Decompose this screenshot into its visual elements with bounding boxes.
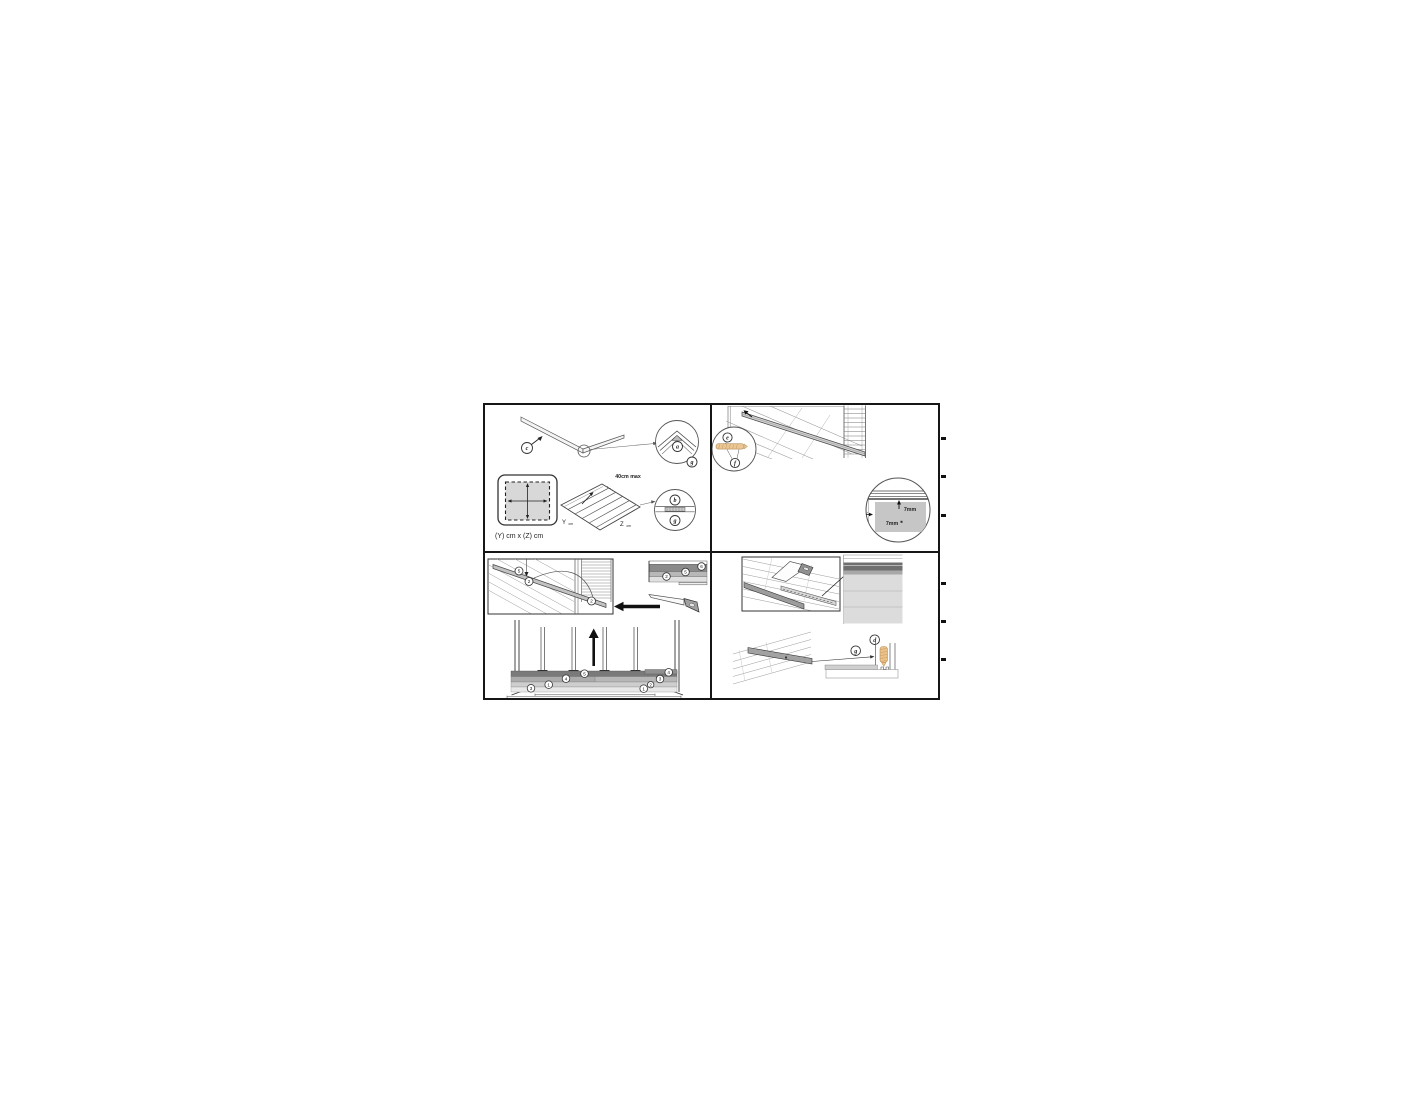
screw-icon [716, 444, 748, 449]
stack-detail: 2 5 6 [649, 561, 707, 585]
arrowhead [538, 436, 543, 441]
base-dimension-square: (Y) cm x (Z) cm [495, 475, 557, 540]
callout-section-1-left-label: 1 [547, 682, 550, 687]
callout-b: b [670, 495, 680, 505]
saw-icon [649, 595, 699, 613]
wall-section-drawing: 5 4 4 3 2 1 3 [507, 620, 683, 698]
callout-2-corner: 2 [588, 597, 596, 605]
callout-f: f [730, 458, 739, 467]
callout-g-label: g [853, 649, 857, 655]
fascia-install-drawing: 5 2 2 [488, 559, 613, 638]
beam-joint-drawing: c [521, 417, 658, 457]
push-arrow-head [614, 602, 624, 611]
callout-section-3-left-label: 3 [530, 686, 533, 691]
axis-z-unit: cm [627, 524, 632, 528]
fixing-point [785, 656, 787, 658]
floor-frame-drawing: 40cm max Y cm Z cm [561, 474, 656, 530]
callout-a-label: a [676, 445, 679, 451]
panel-screw-gap-step: e f 7mm [712, 405, 938, 551]
callout-section-3-right: 3 [656, 675, 664, 683]
callout-c-label: c [526, 446, 529, 452]
edge-tick [941, 514, 946, 517]
callout-section-3-left: 3 [527, 685, 535, 693]
callout-g-joist: g [670, 516, 680, 526]
callout-section-4-right: 4 [665, 669, 673, 677]
arrowhead [870, 655, 875, 658]
callout-g-joist-label: g [673, 519, 677, 525]
fascia-board [748, 648, 812, 665]
callout-stack-5-label: 5 [684, 570, 687, 575]
callout-a: a [673, 442, 683, 452]
callout-section-4-left: 4 [562, 675, 570, 683]
fascia-screw-drawing: g d [733, 632, 898, 684]
callout-5-beam: 5 [515, 567, 523, 575]
panel-floor-frame-step: c a g [485, 405, 708, 551]
callout-5-beam-label: 5 [518, 569, 521, 574]
callout-g-corner-label: g [690, 460, 694, 466]
floor-frame-step-drawing: c a g [485, 405, 708, 551]
edge-tick [941, 475, 946, 478]
gap-side-label: 7mm [886, 521, 899, 527]
callout-section-1-right-label: 1 [642, 686, 645, 691]
section-layers [511, 670, 677, 693]
callout-section-5: 5 [581, 670, 589, 678]
callout-section-5-label: 5 [583, 671, 586, 676]
callout-2-beam: 2 [525, 578, 533, 586]
gap-top-label: 7mm [904, 507, 917, 513]
axis-y-unit: cm [569, 522, 574, 526]
callout-section-2-right-label: 2 [649, 682, 652, 687]
base-board [825, 665, 878, 670]
roof-trim-step-drawing: g d [712, 553, 938, 698]
callout-g: g [851, 646, 861, 656]
assembly-instructions-figure: c a g [483, 403, 940, 700]
callout-2-corner-label: 2 [590, 599, 593, 604]
callout-d: d [870, 635, 880, 645]
callout-stack-6: 6 [698, 563, 706, 571]
callout-c: c [522, 443, 533, 454]
callout-section-3-right-label: 3 [659, 677, 662, 682]
notch-zigzag [881, 667, 889, 670]
roof-cut-drawing [742, 557, 851, 617]
callout-b-label: b [674, 498, 677, 504]
callout-stack-5: 5 [682, 568, 690, 576]
panel-roof-trim-step: g d [712, 553, 938, 698]
callout-section-4-right-label: 4 [667, 670, 670, 675]
screw-gap-step-drawing: e f 7mm [712, 405, 938, 551]
edge-tick [941, 658, 946, 661]
edge-tick [941, 582, 946, 585]
gap-detail: 7mm 7mm [861, 478, 930, 542]
screw-detail: e f [712, 427, 756, 471]
spacing-note: 40cm max [615, 474, 641, 480]
corner-detail: a g [656, 421, 699, 468]
callout-e-label: e [726, 436, 729, 442]
eave-detail [844, 555, 903, 624]
width-measure-lines [507, 694, 681, 698]
callout-g-corner: g [687, 457, 697, 467]
panel-face [875, 502, 926, 532]
dims-caption: (Y) cm x (Z) cm [495, 533, 543, 540]
callout-section-4-left-label: 4 [565, 676, 568, 681]
edge-tick [941, 437, 946, 440]
edge-tick [941, 620, 946, 623]
axis-y-label: Y [562, 520, 566, 526]
callout-e: e [723, 433, 732, 442]
callout-section-1-right: 1 [640, 685, 648, 693]
base-outline [826, 670, 898, 679]
eave-trim-band [844, 563, 903, 571]
callout-stack-2: 2 [663, 573, 671, 581]
callout-stack-6-label: 6 [700, 564, 703, 569]
callout-stack-2-label: 2 [665, 574, 668, 579]
lift-arrow-head [589, 629, 599, 639]
callout-section-1-left: 1 [545, 681, 553, 689]
joist-detail: b g [655, 490, 696, 531]
callout-section-2-right: 2 [648, 682, 654, 688]
panel-fascia-section-step: 5 2 2 2 [485, 553, 708, 698]
wall-panel-face [844, 575, 903, 624]
screw-icon-vertical [880, 647, 888, 667]
manual-page: { "figure": { "panel_top_left": { "callo… [0, 0, 1422, 1100]
callout-2-beam-label: 2 [528, 579, 531, 584]
fascia-section-step-drawing: 5 2 2 2 [485, 553, 708, 698]
axis-z-label: Z [620, 522, 624, 528]
section-posts [538, 627, 641, 673]
